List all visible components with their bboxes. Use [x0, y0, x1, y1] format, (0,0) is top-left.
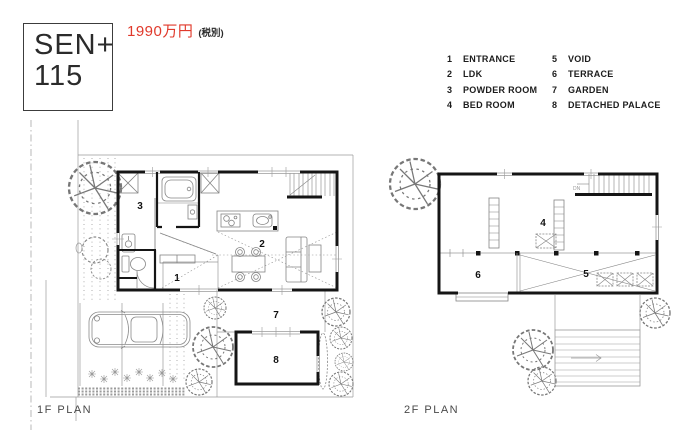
- legend-num: 4: [447, 100, 463, 110]
- gravel-band: [78, 389, 185, 395]
- legend-label: ENTRANCE: [463, 54, 515, 64]
- flower-bed: [88, 368, 177, 383]
- furniture-1f: [118, 173, 337, 290]
- planting-strips: [84, 158, 184, 382]
- legend-label: LDK: [463, 69, 482, 79]
- price-amount: 1990万円: [127, 23, 193, 40]
- legend-item-terrace: 6 TERRACE: [552, 67, 661, 83]
- logo-line1: SEN+: [34, 30, 112, 61]
- windows-2f: [497, 169, 662, 240]
- tree-icon: [69, 162, 121, 214]
- room-number-3: 3: [137, 201, 143, 212]
- legend-column-1: 1 ENTRANCE 2 LDK 3 POWDER ROOM 4 BED ROO…: [447, 51, 537, 113]
- price: 1990万円(税別): [127, 20, 224, 41]
- legend-item-void: 5 VOID: [552, 51, 661, 67]
- walls-2f: [438, 173, 659, 295]
- plan-label-2f: 2F PLAN: [404, 404, 459, 416]
- legend-label: TERRACE: [568, 69, 614, 79]
- room-number-8: 8: [273, 355, 279, 366]
- room-number-4: 4: [540, 218, 546, 229]
- price-tax-note: (税別): [198, 28, 223, 39]
- furniture-2f: [439, 174, 657, 386]
- room-number-7: 7: [273, 310, 279, 321]
- room-number-5: 5: [583, 269, 589, 280]
- plan-sheet: 3 1 2 7 8 4 5 6 DN SEN+ 115 1990万円(税別) 1…: [0, 0, 700, 438]
- legend-num: 8: [552, 100, 568, 110]
- stairs-dn-label: DN: [573, 186, 581, 192]
- room-number-2: 2: [259, 239, 265, 250]
- logo-box: SEN+ 115: [23, 23, 113, 111]
- legend-item-garden: 7 GARDEN: [552, 82, 661, 98]
- legend-item-detached-palace: 8 DETACHED PALACE: [552, 98, 661, 114]
- legend-label: DETACHED PALACE: [568, 100, 661, 110]
- car-icon: [89, 311, 190, 349]
- legend-num: 1: [447, 54, 463, 64]
- legend-label: POWDER ROOM: [463, 85, 537, 95]
- legend-num: 5: [552, 54, 568, 64]
- legend-item-powder-room: 3 POWDER ROOM: [447, 82, 537, 98]
- room-number-1: 1: [174, 273, 180, 284]
- legend-num: 3: [447, 85, 463, 95]
- legend-label: GARDEN: [568, 85, 609, 95]
- legend-item-entrance: 1 ENTRANCE: [447, 51, 537, 67]
- legend-item-ldk: 2 LDK: [447, 67, 537, 83]
- room-number-6: 6: [475, 270, 481, 281]
- legend-label: VOID: [568, 54, 591, 64]
- plan-label-1f: 1F PLAN: [37, 404, 92, 416]
- legend-num: 6: [552, 69, 568, 79]
- legend-column-2: 5 VOID 6 TERRACE 7 GARDEN 8 DETACHED PAL…: [552, 51, 661, 113]
- legend-item-bed-room: 4 BED ROOM: [447, 98, 537, 114]
- legend-label: BED ROOM: [463, 100, 515, 110]
- logo-line2: 115: [34, 61, 112, 92]
- legend-num: 2: [447, 69, 463, 79]
- legend-num: 7: [552, 85, 568, 95]
